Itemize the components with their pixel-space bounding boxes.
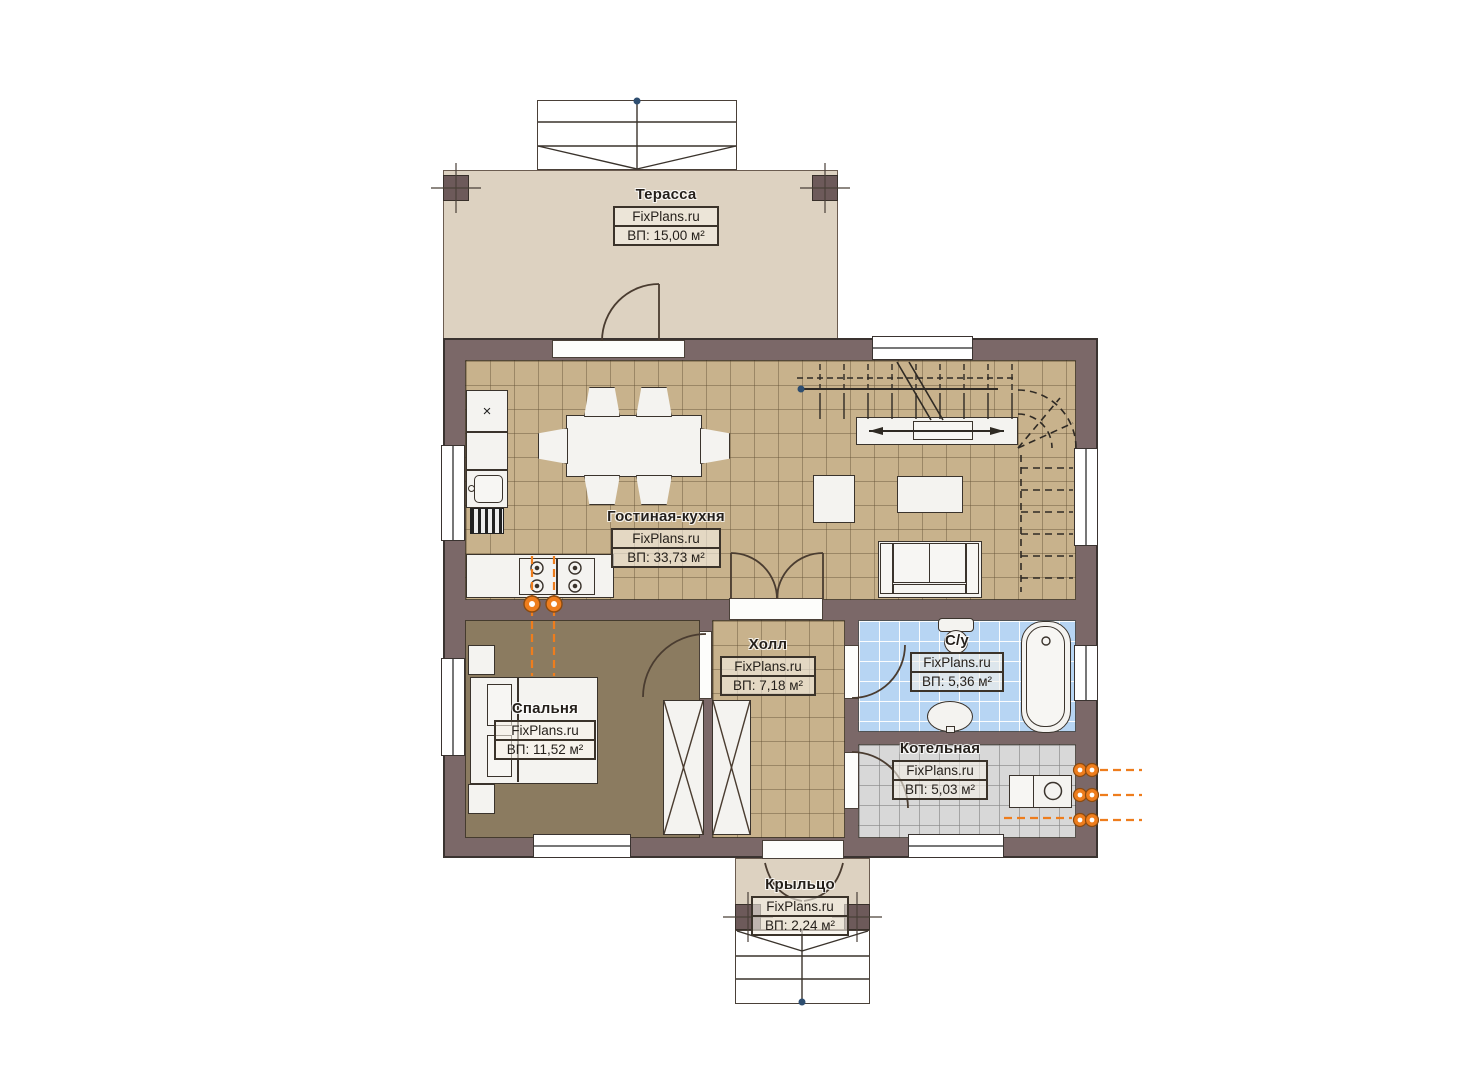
terrace-steps — [537, 100, 737, 170]
chair-top-2 — [636, 387, 672, 417]
label-bathroom: С/у FixPlans.ru ВП: 5,36 м² — [877, 632, 1037, 692]
room-name-terrace: Терасса — [636, 186, 697, 203]
watermark: FixPlans.ru — [753, 898, 847, 917]
porch-steps — [735, 930, 870, 1004]
area-value: ВП: 15,00 м² — [615, 227, 717, 244]
area-value: ВП: 5,03 м² — [894, 781, 986, 798]
floor-plan-canvas: × — [0, 0, 1473, 1080]
label-hall: Холл FixPlans.ru ВП: 7,18 м² — [688, 636, 848, 696]
area-value: ВП: 7,18 м² — [722, 677, 814, 694]
fridge: × — [466, 390, 508, 432]
info-box-living: FixPlans.ru ВП: 33,73 м² — [611, 528, 721, 568]
nightstand-top — [468, 645, 495, 675]
boiler-door-gap — [844, 752, 859, 809]
watermark: FixPlans.ru — [894, 762, 986, 781]
label-terrace: Терасса FixPlans.ru ВП: 15,00 м² — [576, 186, 756, 246]
room-name-boiler: Котельная — [900, 740, 980, 757]
sofa-back — [893, 584, 966, 594]
area-value: ВП: 11,52 м² — [496, 741, 594, 758]
area-value: ВП: 2,24 м² — [753, 917, 847, 934]
wardrobe-left — [663, 700, 704, 835]
window-left-bedroom — [441, 658, 465, 756]
nightstand-bottom — [468, 784, 495, 814]
chair-top-1 — [584, 387, 620, 417]
info-box-porch: FixPlans.ru ВП: 2,24 м² — [751, 896, 849, 936]
watermark: FixPlans.ru — [722, 658, 814, 677]
room-name-porch: Крыльцо — [765, 876, 835, 893]
info-box-boiler: FixPlans.ru ВП: 5,03 м² — [892, 760, 988, 800]
info-box-bedroom: FixPlans.ru ВП: 11,52 м² — [494, 720, 596, 760]
chair-right — [700, 428, 730, 464]
side-table — [813, 475, 855, 523]
label-boiler: Котельная FixPlans.ru ВП: 5,03 м² — [860, 740, 1020, 800]
window-bottom-bedroom — [533, 834, 631, 858]
room-name-hall: Холл — [749, 636, 787, 653]
watermark: FixPlans.ru — [912, 654, 1002, 673]
window-right-living — [1074, 448, 1098, 546]
info-box-terrace: FixPlans.ru ВП: 15,00 м² — [613, 206, 719, 246]
double-door-threshold — [729, 598, 823, 620]
label-porch: Крыльцо FixPlans.ru ВП: 2,24 м² — [720, 876, 880, 936]
bathroom-sink-tap — [946, 726, 955, 733]
chair-left — [538, 428, 568, 464]
entry-door-threshold — [762, 840, 844, 859]
wardrobe-right — [712, 700, 751, 835]
room-name-living: Гостиная-кухня — [607, 508, 725, 525]
area-value: ВП: 5,36 м² — [912, 673, 1002, 690]
chair-bottom-2 — [636, 475, 672, 505]
stair-landing-shelf — [856, 417, 1018, 445]
window-left-kitchen — [441, 445, 465, 541]
sofa-armrest-left — [880, 543, 893, 594]
window-right-bathroom — [1074, 645, 1098, 701]
watermark: FixPlans.ru — [615, 208, 717, 227]
chair-bottom-1 — [584, 475, 620, 505]
terrace-door-threshold — [552, 340, 685, 358]
kitchen-sink — [466, 470, 508, 508]
watermark: FixPlans.ru — [496, 722, 594, 741]
room-name-bedroom: Спальня — [512, 700, 578, 717]
sofa — [878, 541, 982, 598]
room-name-bathroom: С/у — [945, 632, 969, 649]
sofa-cushion-1 — [893, 543, 930, 583]
fridge-cross-icon: × — [483, 403, 492, 420]
terrace-post-left — [443, 175, 469, 201]
info-box-bathroom: FixPlans.ru ВП: 5,36 м² — [910, 652, 1004, 692]
dining-table — [566, 415, 702, 477]
terrace-post-right — [812, 175, 838, 201]
dish-rack — [470, 508, 504, 534]
window-top-living — [872, 336, 973, 360]
coffee-table — [897, 476, 963, 513]
window-bottom-boiler — [908, 834, 1004, 858]
label-living: Гостиная-кухня FixPlans.ru ВП: 33,73 м² — [576, 508, 756, 568]
info-box-hall: FixPlans.ru ВП: 7,18 м² — [720, 656, 816, 696]
sofa-cushion-2 — [929, 543, 966, 583]
watermark: FixPlans.ru — [613, 530, 719, 549]
kitchen-cabinet — [466, 432, 508, 470]
sofa-armrest-right — [966, 543, 979, 594]
label-bedroom: Спальня FixPlans.ru ВП: 11,52 м² — [465, 700, 625, 760]
area-value: ВП: 33,73 м² — [613, 549, 719, 566]
